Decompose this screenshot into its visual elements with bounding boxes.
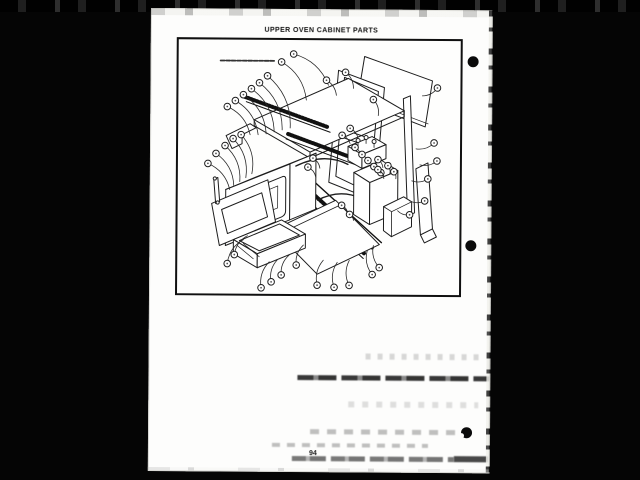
faded-text-line [297,375,489,381]
page-title: UPPER OVEN CABINET PARTS [151,26,492,35]
page-top-scan-smear [151,8,492,17]
binder-hole [465,240,476,251]
faded-text-line [454,456,488,462]
figure-frame [175,37,463,297]
binder-hole [461,427,472,438]
scanned-document-page: UPPER OVEN CABINET PARTS [0,0,640,480]
manual-page: UPPER OVEN CABINET PARTS [148,8,492,473]
faded-text-line [348,401,478,408]
exploded-parts-diagram [177,39,461,295]
page-bottom-scan-smear [148,467,489,472]
page-number: 94 [303,450,323,457]
binder-hole [468,56,479,67]
faded-text-line [366,354,486,361]
faded-text-line [310,429,468,435]
faded-text-line [272,443,428,448]
torn-page-edge [486,10,493,473]
handle-part [213,177,220,204]
